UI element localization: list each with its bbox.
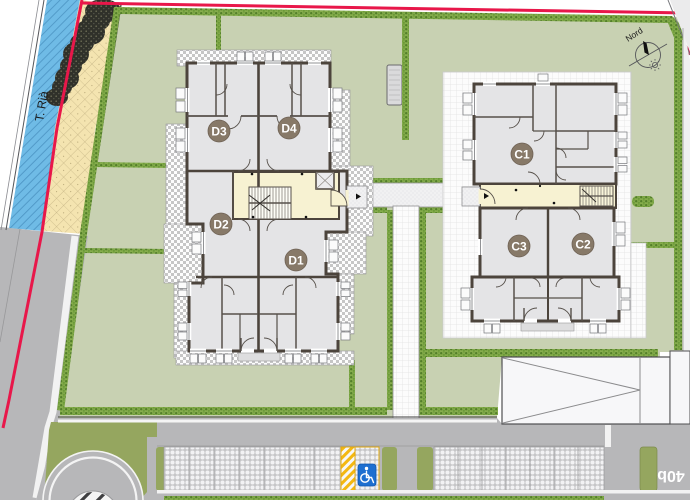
svg-text:C1: C1 (514, 148, 530, 162)
svg-text:C2: C2 (575, 238, 591, 252)
svg-text:40b: 40b (657, 467, 685, 484)
svg-text:D1: D1 (288, 254, 304, 268)
svg-text:D2: D2 (213, 218, 229, 232)
svg-text:C3: C3 (511, 240, 527, 254)
svg-text:D4: D4 (281, 122, 297, 136)
svg-text:D3: D3 (211, 125, 227, 139)
